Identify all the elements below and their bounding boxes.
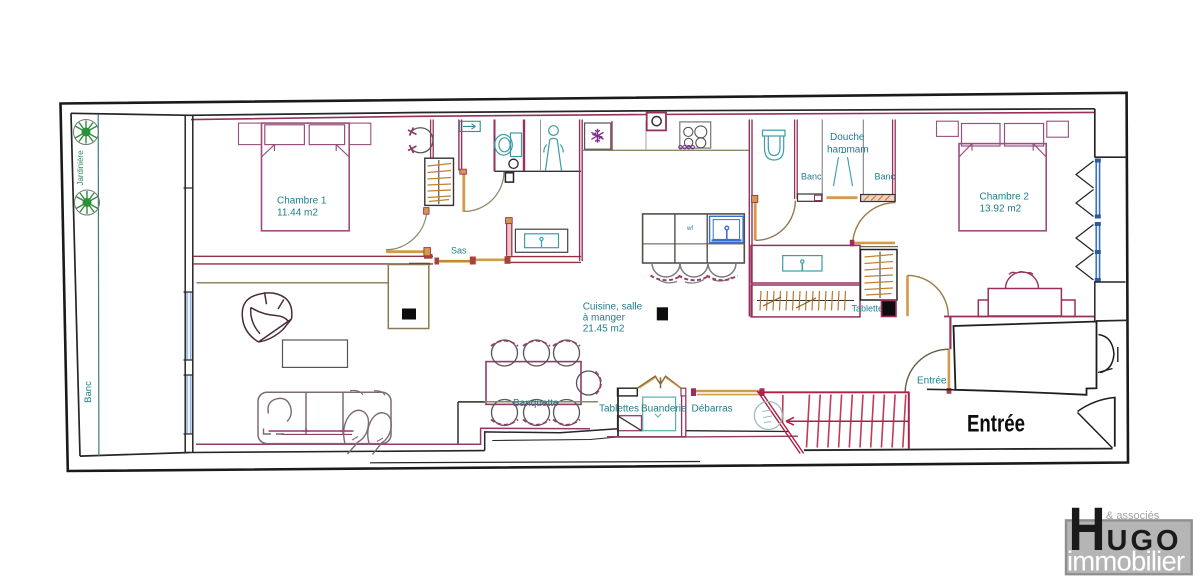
svg-text:immobilier: immobilier (1067, 546, 1185, 577)
svg-text:Banc: Banc (83, 381, 94, 403)
svg-text:hammam: hammam (827, 145, 869, 156)
svg-text:13.92 m2: 13.92 m2 (980, 204, 1022, 215)
svg-text:Cuisine, salle: Cuisine, salle (583, 302, 643, 313)
svg-text:Tablettes: Tablettes (599, 404, 639, 415)
svg-text:Chambre 1: Chambre 1 (277, 196, 327, 207)
svg-text:21.45 m2: 21.45 m2 (583, 324, 625, 335)
svg-text:Jardinière: Jardinière (76, 150, 85, 186)
svg-text:Banc: Banc (875, 172, 896, 182)
svg-text:Débarras: Débarras (692, 404, 733, 415)
svg-text:Entrée: Entrée (917, 376, 947, 387)
svg-text:Buanderie: Buanderie (641, 404, 687, 415)
svg-text:Chambre 2: Chambre 2 (980, 192, 1030, 203)
svg-text:& associés: & associés (1106, 510, 1160, 522)
svg-text:Sas: Sas (451, 246, 467, 256)
svg-text:Banquette: Banquette (513, 398, 559, 409)
svg-text:wf: wf (686, 226, 693, 232)
svg-text:Entrée: Entrée (967, 411, 1025, 438)
svg-text:11.44 m2: 11.44 m2 (277, 208, 318, 219)
svg-text:Banc: Banc (801, 172, 822, 182)
svg-text:à manger: à manger (583, 313, 626, 324)
svg-text:Douche: Douche (830, 132, 865, 143)
